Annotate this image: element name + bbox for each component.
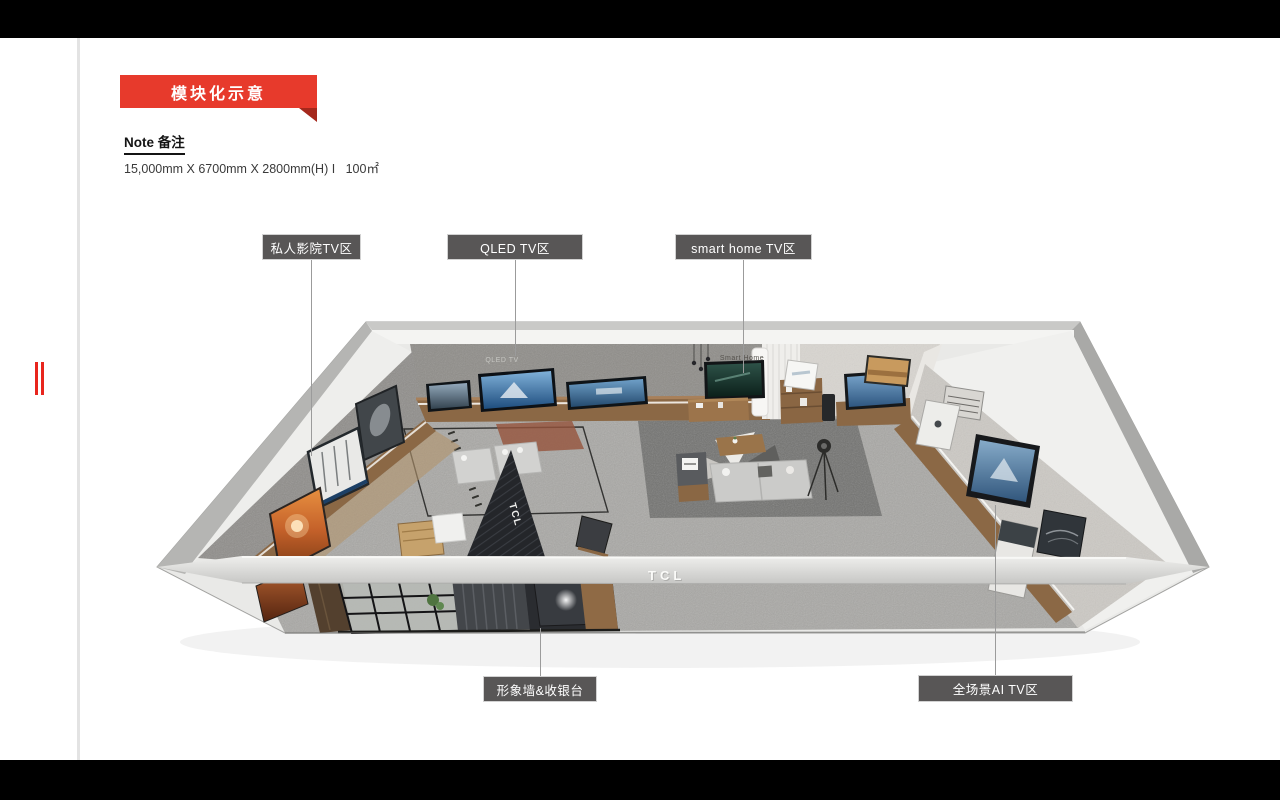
leader-line (540, 628, 541, 676)
poster-frame (784, 360, 818, 390)
qled-wall-sign: QLED TV (485, 357, 518, 364)
leader-line (311, 260, 312, 456)
slide: QLED TV Smart Home (0, 0, 1280, 800)
front-beam: TCL TCL (157, 556, 1209, 584)
leader-line (515, 260, 516, 356)
cashier-counter (524, 576, 618, 631)
leader-line (995, 505, 996, 675)
wave-art (1037, 510, 1086, 560)
air-purifier (822, 394, 835, 421)
sofa (494, 442, 542, 476)
pillow (758, 466, 773, 478)
front-beam-logo: TCL (648, 568, 685, 583)
sofa (452, 448, 496, 484)
leader-line (743, 260, 744, 373)
ottoman (432, 513, 466, 543)
showroom-illustration: QLED TV Smart Home (0, 0, 1280, 800)
